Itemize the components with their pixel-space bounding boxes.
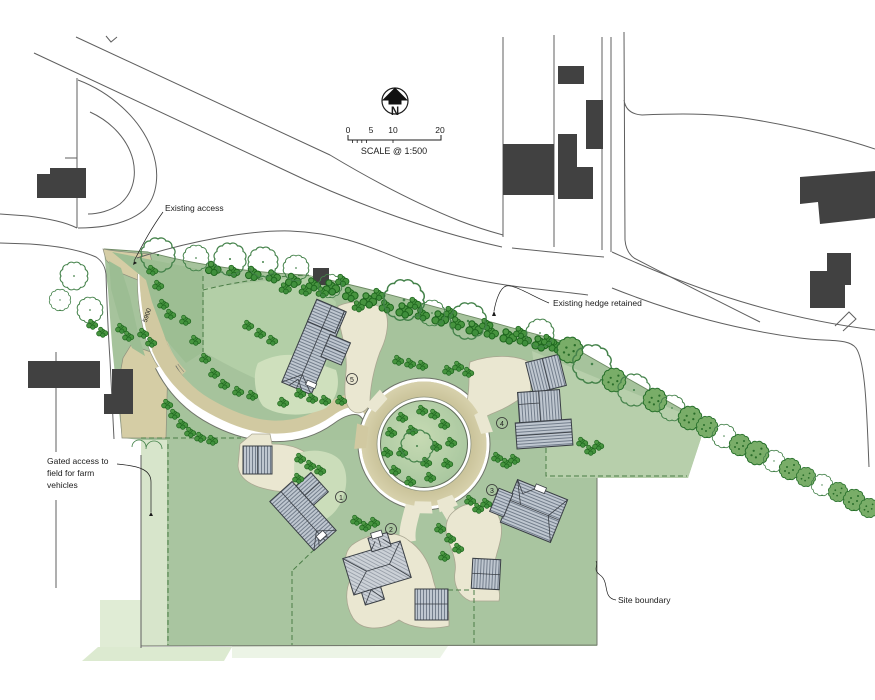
svg-text:3: 3 xyxy=(490,488,494,495)
svg-text:4: 4 xyxy=(500,421,504,428)
svg-text:Existing hedge retained: Existing hedge retained xyxy=(553,298,642,308)
svg-text:N: N xyxy=(391,106,399,118)
svg-text:10: 10 xyxy=(388,125,398,135)
svg-text:1: 1 xyxy=(339,495,343,502)
svg-text:5: 5 xyxy=(369,125,374,135)
svg-text:SCALE @ 1:500: SCALE @ 1:500 xyxy=(361,146,427,156)
svg-text:Existing access: Existing access xyxy=(165,203,224,213)
svg-text:20: 20 xyxy=(435,125,445,135)
svg-text:field for farm: field for farm xyxy=(47,468,94,478)
svg-text:0: 0 xyxy=(346,125,351,135)
svg-text:Gated access to: Gated access to xyxy=(47,456,109,466)
svg-text:Site boundary: Site boundary xyxy=(618,595,671,605)
svg-text:5: 5 xyxy=(350,377,354,384)
svg-text:2: 2 xyxy=(389,527,393,534)
svg-text:vehicles: vehicles xyxy=(47,480,78,490)
